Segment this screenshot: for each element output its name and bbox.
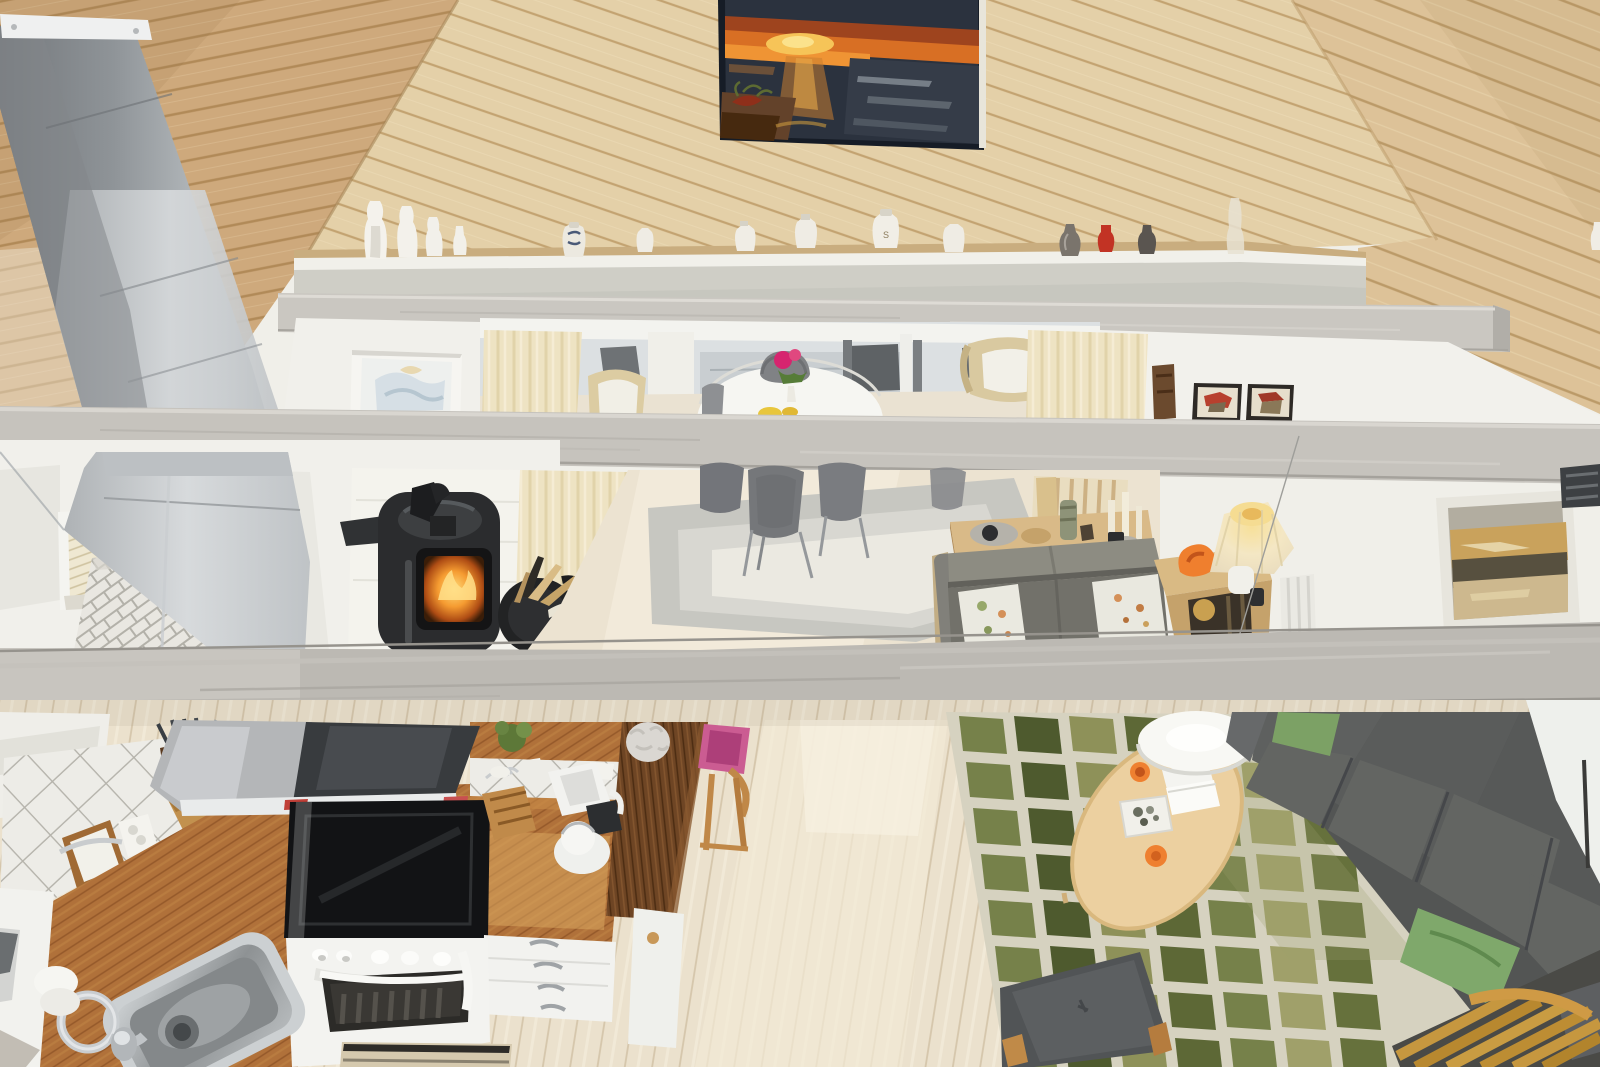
svg-text:S: S (883, 230, 889, 240)
